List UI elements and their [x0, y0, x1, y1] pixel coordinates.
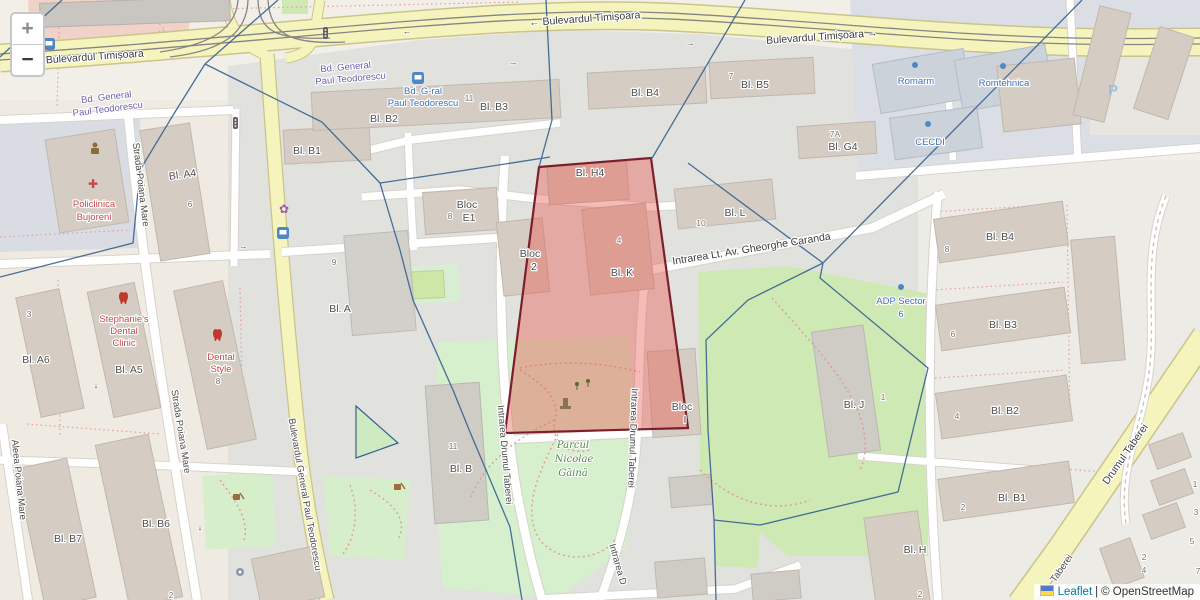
- attribution-bar: Leaflet|© OpenStreetMap: [1034, 584, 1200, 600]
- svg-text:Nicolae: Nicolae: [554, 454, 594, 465]
- building-label: Bloc: [457, 199, 477, 211]
- building-label: Bl. J: [844, 399, 864, 411]
- building: [751, 570, 801, 600]
- building-label: Bl. L: [724, 207, 745, 219]
- housenumber: 11: [449, 441, 458, 451]
- housenumber: 6: [951, 329, 956, 339]
- svg-text:Bd. G-ral: Bd. G-ral: [404, 86, 442, 97]
- building-label: Bl. B2: [370, 113, 398, 125]
- building-label: Bl. B2: [991, 405, 1019, 417]
- svg-text:Parcul: Parcul: [556, 440, 589, 451]
- svg-text:6: 6: [898, 309, 903, 320]
- building-label: Bloc: [672, 401, 692, 413]
- building-bl-a: [344, 230, 416, 335]
- poi-label-romarm: Romarm: [898, 76, 935, 87]
- svg-text:Dental: Dental: [110, 326, 137, 337]
- housenumber: 6: [188, 199, 193, 209]
- poi-label-park: Parcul Nicolae Găină: [554, 440, 594, 479]
- svg-text:Găină: Găină: [558, 468, 588, 479]
- map-tiles: ✚ ✿: [0, 0, 1200, 600]
- housenumber: 4: [955, 411, 960, 421]
- oneway-arrow-icon: ↓: [94, 380, 99, 390]
- poi-label-romtehnica: Romtehnica: [979, 78, 1030, 89]
- building: [655, 558, 708, 598]
- playground-square-sw: [202, 472, 276, 550]
- svg-text:Bujoreni: Bujoreni: [77, 212, 112, 223]
- oneway-arrow-icon: →: [239, 241, 248, 251]
- housenumber: 2: [1142, 552, 1147, 562]
- building-label: Bl. A6: [22, 354, 50, 366]
- zoom-in-button[interactable]: +: [12, 14, 43, 45]
- poi-dot-cecdi: [925, 121, 931, 127]
- oneway-arrow-icon: →: [509, 57, 518, 67]
- building: [669, 474, 713, 508]
- clinic-cross-icon: ✚: [88, 177, 98, 191]
- svg-text:ADP Sector: ADP Sector: [876, 296, 925, 307]
- housenumber: 4: [1142, 565, 1147, 575]
- svg-text:Dental: Dental: [207, 352, 234, 363]
- svg-text:Policlinica: Policlinica: [73, 199, 116, 210]
- poi-label-dental-style: Dental Style: [207, 352, 234, 375]
- building-label: Bl. A: [329, 303, 351, 315]
- zoom-out-button[interactable]: −: [12, 45, 43, 75]
- poi-dot-romtehnica: [1000, 63, 1006, 69]
- housenumber: 4: [617, 235, 622, 245]
- housenumber: 8: [945, 244, 950, 254]
- housenumber: 2: [169, 590, 174, 600]
- building-label: Bl. B4: [986, 231, 1014, 243]
- poi-label-cecdi: CECDI: [915, 137, 945, 148]
- housenumber: 11: [465, 93, 474, 103]
- building-label: Bl. B6: [142, 518, 170, 530]
- building-label: Bl. B3: [989, 319, 1017, 331]
- ukraine-flag-icon: [1040, 585, 1054, 596]
- housenumber: 1: [881, 392, 886, 402]
- building-label: Bl. B3: [480, 101, 508, 113]
- poi-dot-romarm: [912, 62, 918, 68]
- traffic-signal-icon: [233, 117, 238, 129]
- oneway-arrow-icon: ←: [403, 26, 412, 36]
- poi-dot-adp: [898, 284, 904, 290]
- housenumber: 7A: [830, 129, 841, 139]
- building-label: Bl. B4: [631, 87, 659, 99]
- building-label: E1: [463, 212, 476, 224]
- building-label: Bl. B: [450, 463, 472, 475]
- housenumber: 5: [1190, 536, 1195, 546]
- parking-label: P: [1108, 82, 1118, 99]
- housenumber: 8: [448, 211, 453, 221]
- housenumber: 7: [1196, 566, 1200, 576]
- building-label: Bl. B5: [741, 79, 769, 91]
- building-label: Bl. B1: [998, 492, 1026, 504]
- housenumber: 10: [696, 218, 706, 228]
- green-patch-n: [282, 0, 308, 14]
- svg-text:Style: Style: [210, 364, 231, 375]
- building-label: Bl. A5: [115, 364, 143, 376]
- housenumber: 1: [1193, 479, 1198, 489]
- zoom-control: + −: [10, 12, 45, 77]
- traffic-signal-icon: [323, 27, 328, 39]
- building-label: Bl. G4: [828, 141, 857, 153]
- bus-stop-icon: [412, 72, 424, 84]
- oneway-arrow-icon: →: [686, 38, 695, 48]
- attribution-separator: |: [1095, 586, 1098, 598]
- housenumber: 8: [216, 376, 221, 386]
- housenumber: 3: [1194, 507, 1199, 517]
- osm-copyright: © OpenStreetMap: [1101, 586, 1194, 598]
- building-label: Bl. H: [904, 544, 927, 556]
- building-label: Bl. B7: [54, 533, 82, 545]
- building-bloc-e1: [423, 187, 500, 234]
- housenumber: 2: [918, 589, 923, 599]
- map-canvas[interactable]: ✚ ✿: [0, 0, 1200, 600]
- building-label: 2: [531, 261, 537, 273]
- housenumber: 2: [961, 502, 966, 512]
- building-label: Bl. H4: [576, 167, 605, 179]
- leaflet-link[interactable]: Leaflet: [1058, 586, 1093, 598]
- housenumber: 3: [27, 309, 32, 319]
- fountain-icon: [236, 568, 244, 576]
- florist-flower-icon: ✿: [279, 202, 289, 216]
- building-bl-b5: [709, 57, 815, 98]
- building: [997, 58, 1081, 132]
- building-label: Bl. K: [611, 267, 633, 279]
- building-label: I: [684, 414, 687, 426]
- oneway-arrow-icon: ↓: [198, 522, 203, 532]
- building-label: Bloc: [520, 248, 540, 260]
- building-bl-g4: [797, 121, 877, 158]
- housenumber: 9: [332, 257, 337, 267]
- svg-text:Clinic: Clinic: [112, 338, 135, 349]
- svg-text:Paul Teodorescu: Paul Teodorescu: [388, 98, 459, 109]
- bus-stop-icon: [277, 227, 289, 239]
- building-label: Bl. B1: [293, 145, 321, 157]
- housenumber: 7: [729, 71, 734, 81]
- svg-text:Stephanie's: Stephanie's: [99, 314, 149, 325]
